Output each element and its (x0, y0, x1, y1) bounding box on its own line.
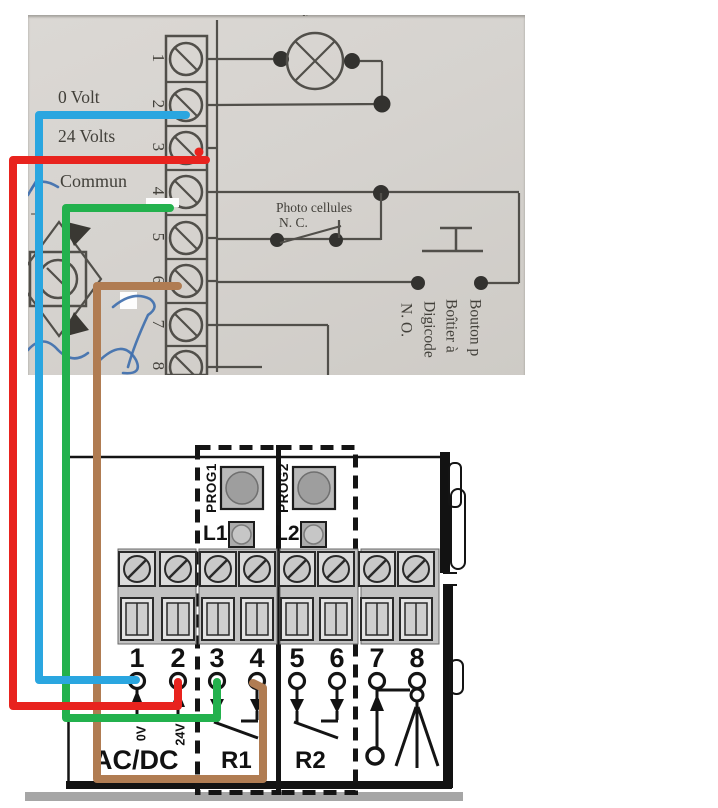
module-terminal-1: 1 (126, 643, 148, 674)
module-terminal-3: 3 (206, 643, 228, 674)
module-terminal-5: 5 (286, 643, 308, 674)
prog1-button (221, 467, 263, 509)
module-terminal-4: 4 (246, 643, 268, 674)
relay-r2-symbol (290, 689, 344, 738)
receiver-module-drawing (0, 0, 718, 808)
module-terminal-8: 8 (406, 643, 428, 674)
module-terminal-6: 6 (326, 643, 348, 674)
module-terminal-7: 7 (366, 643, 388, 674)
l1-led (229, 522, 254, 547)
r1-label: R1 (221, 747, 252, 775)
acdc-label: AC/DC (93, 745, 179, 776)
antenna-symbol (367, 689, 438, 768)
wiring-diagram: 0 Volt 24 Volts Commun + - Photo cellule… (0, 0, 718, 808)
prog2-button (293, 467, 335, 509)
module-terminal-2: 2 (167, 643, 189, 674)
r2-label: R2 (295, 747, 326, 775)
v0-label: 0V (135, 719, 148, 749)
prog1-label: PROG1 (204, 460, 218, 516)
l1-label: L1 (203, 522, 228, 546)
relay-r1-symbol (210, 689, 264, 738)
photo-bottom-strip (25, 792, 463, 801)
l2-led (301, 522, 326, 547)
l2-label: L2 (275, 522, 300, 546)
prog2-label: PROG2 (276, 460, 290, 516)
